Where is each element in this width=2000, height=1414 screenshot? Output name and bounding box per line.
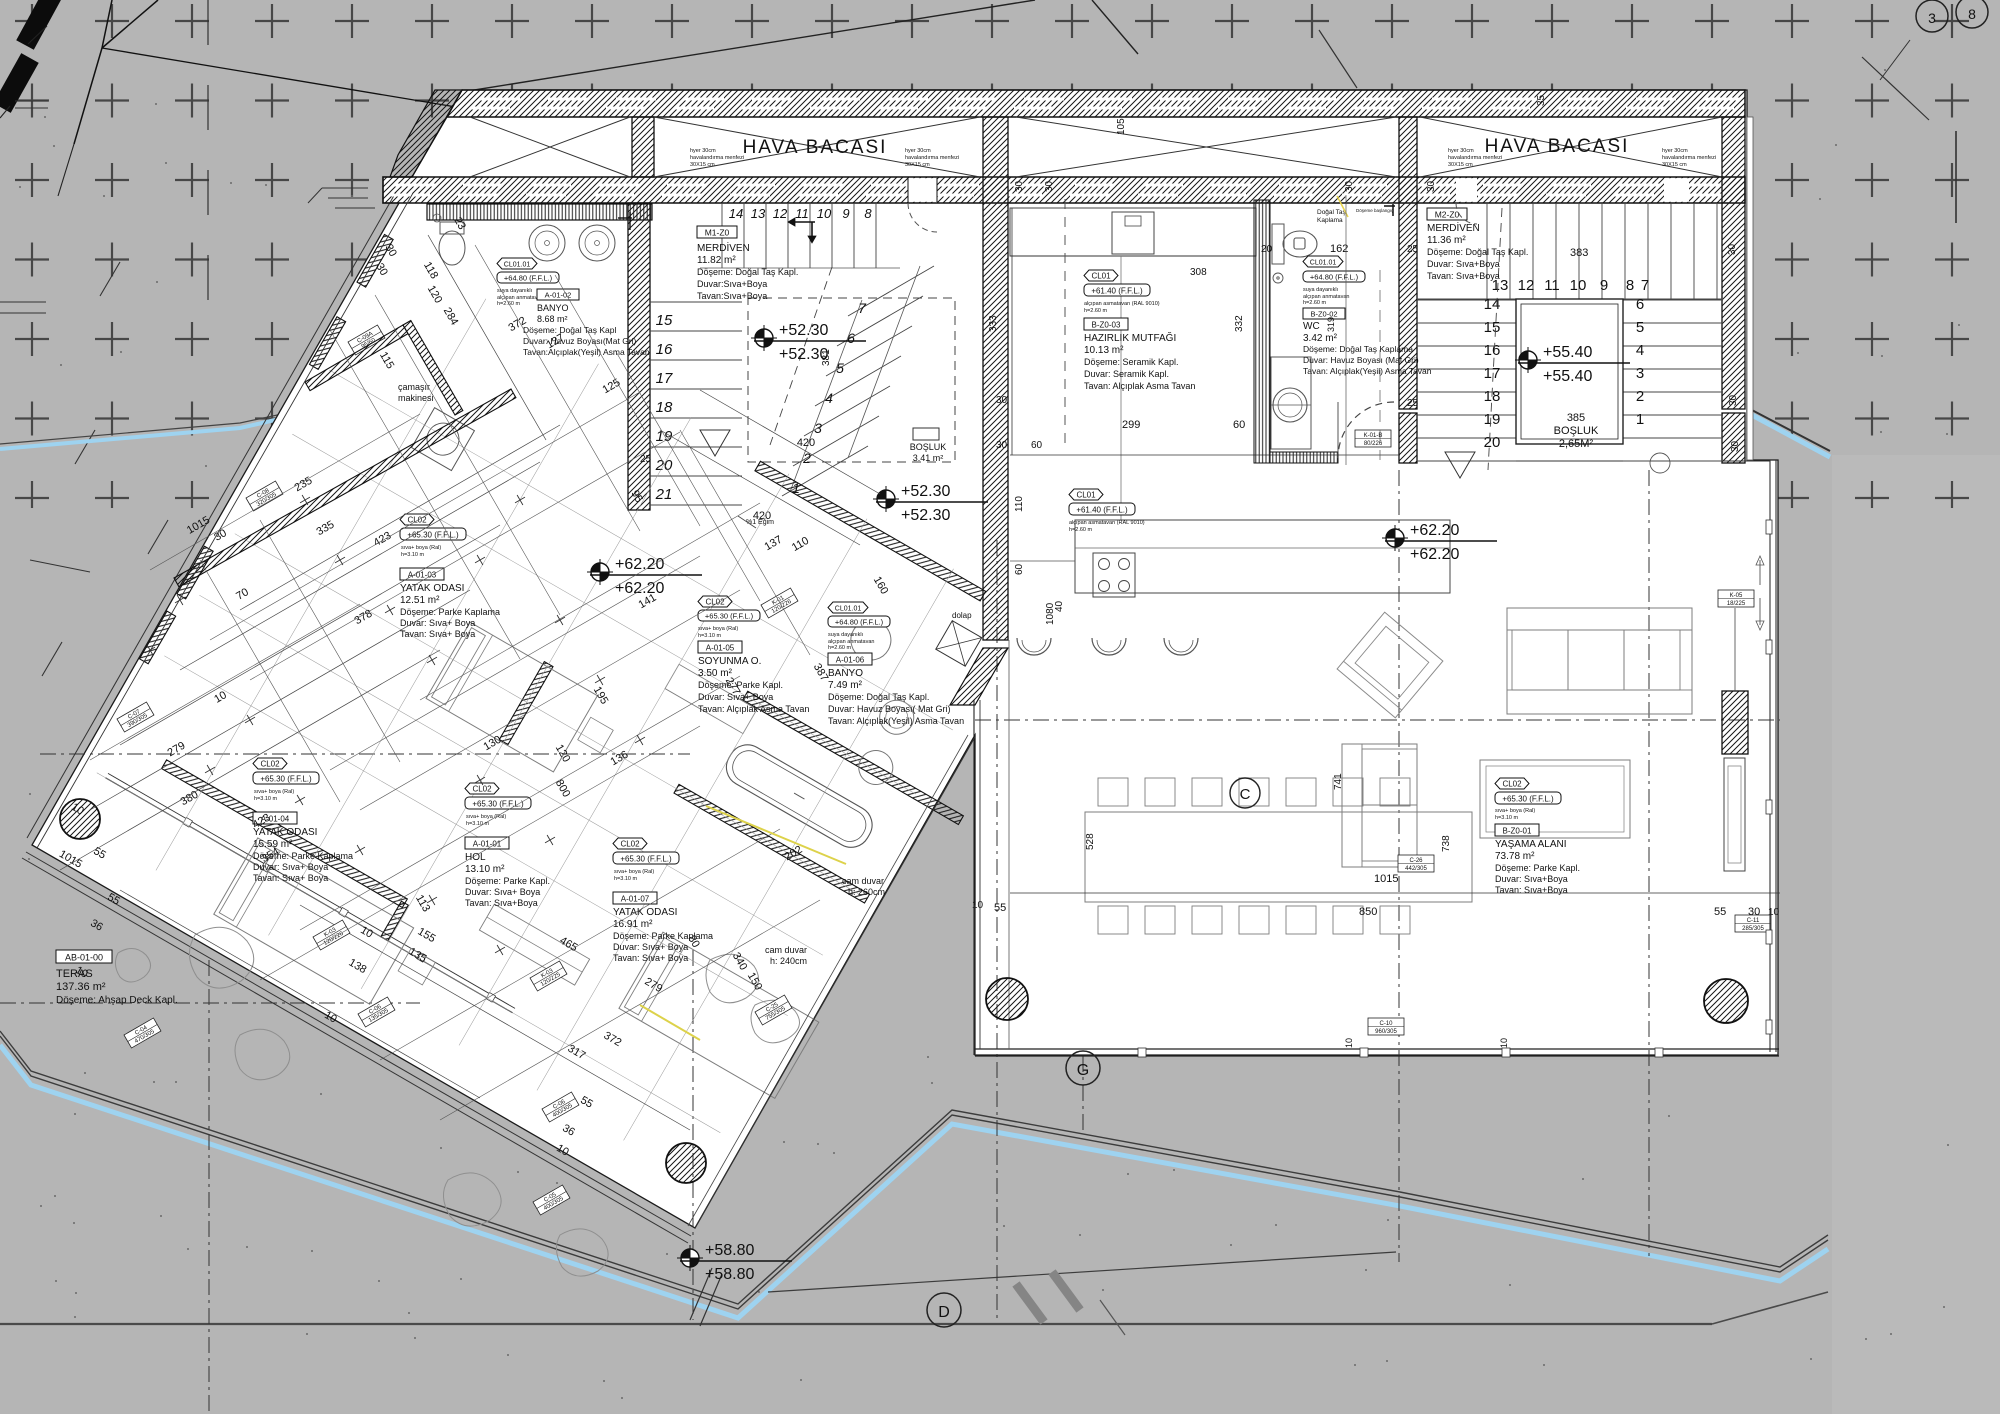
svg-text:Döşeme başlangıç: Döşeme başlangıç — [1356, 208, 1394, 213]
svg-text:Tavan: Sıva+Boya: Tavan: Sıva+Boya — [465, 898, 538, 908]
svg-text:30X15 cm: 30X15 cm — [690, 162, 715, 168]
svg-text:442/305: 442/305 — [1405, 866, 1427, 872]
svg-text:alçıpan asmatavan (RAL 9010): alçıpan asmatavan (RAL 9010) — [1084, 301, 1160, 307]
svg-text:299: 299 — [1122, 419, 1140, 431]
svg-text:h=3.10 m: h=3.10 m — [466, 821, 490, 827]
svg-text:AB-01-00: AB-01-00 — [65, 953, 103, 963]
svg-text:4: 4 — [1636, 342, 1644, 359]
svg-text:+52.30: +52.30 — [779, 322, 828, 339]
svg-text:hyer 30cm: hyer 30cm — [690, 148, 716, 154]
svg-text:h=2.60 m: h=2.60 m — [1069, 527, 1093, 533]
svg-text:105: 105 — [1116, 118, 1127, 135]
svg-text:6: 6 — [1636, 296, 1644, 313]
svg-text:+65.30 (F.F.L.): +65.30 (F.F.L.) — [705, 612, 754, 621]
svg-text:6: 6 — [847, 330, 855, 346]
svg-text:383: 383 — [1570, 247, 1588, 259]
svg-text:19: 19 — [656, 428, 673, 445]
svg-text:h=3.10 m: h=3.10 m — [614, 876, 638, 882]
svg-text:D: D — [938, 1304, 950, 1321]
svg-text:+55.40: +55.40 — [1543, 344, 1592, 361]
svg-text:+52.30: +52.30 — [901, 483, 950, 500]
svg-text:73.78 m²: 73.78 m² — [1495, 851, 1535, 862]
svg-text:CL01.01: CL01.01 — [504, 262, 531, 269]
svg-text:5: 5 — [1636, 319, 1644, 336]
svg-text:528: 528 — [1085, 833, 1096, 850]
svg-text:14: 14 — [729, 206, 743, 221]
svg-text:30: 30 — [1014, 180, 1025, 192]
svg-text:h=3.10 m: h=3.10 m — [254, 796, 278, 802]
svg-text:A-01-02: A-01-02 — [545, 291, 572, 300]
svg-text:Tavan: Sıva+ Boya: Tavan: Sıva+ Boya — [613, 953, 688, 963]
svg-text:1: 1 — [1636, 411, 1644, 428]
svg-text:30X15 cm: 30X15 cm — [1662, 162, 1687, 168]
svg-text:havalandırma menfezi: havalandırma menfezi — [1662, 155, 1716, 161]
svg-text:1015: 1015 — [1374, 873, 1398, 885]
svg-text:332: 332 — [1234, 315, 1245, 332]
svg-text:BOŞLUK: BOŞLUK — [910, 442, 947, 452]
svg-text:Tavan:Alçıplak(Yeşil) Asma Tav: Tavan:Alçıplak(Yeşil) Asma Tavan — [523, 347, 650, 357]
svg-text:30: 30 — [1730, 440, 1741, 452]
svg-text:BOŞLUK: BOŞLUK — [1554, 425, 1599, 437]
svg-text:110: 110 — [1014, 496, 1025, 512]
svg-text:30: 30 — [1344, 180, 1355, 192]
svg-text:CL02: CL02 — [620, 840, 640, 849]
svg-text:YATAK ODASI: YATAK ODASI — [400, 583, 464, 594]
svg-text:55: 55 — [994, 902, 1006, 914]
svg-text:10: 10 — [1344, 1038, 1354, 1048]
svg-text:13: 13 — [751, 206, 766, 221]
svg-text:h: 240cm: h: 240cm — [770, 956, 807, 966]
svg-text:10: 10 — [1570, 277, 1587, 294]
svg-text:12: 12 — [773, 206, 788, 221]
svg-text:+65.30 (F.F.L.): +65.30 (F.F.L.) — [472, 800, 524, 809]
svg-text:A-01-05: A-01-05 — [706, 644, 735, 653]
svg-text:sıva+ boya (Ral): sıva+ boya (Ral) — [1495, 808, 1535, 814]
svg-text:11: 11 — [795, 206, 809, 221]
svg-text:B-Z0-01: B-Z0-01 — [1503, 827, 1532, 836]
svg-text:sıva+ boya (Ral): sıva+ boya (Ral) — [466, 814, 506, 820]
svg-text:4: 4 — [825, 390, 833, 406]
svg-text:MERDİVEN: MERDİVEN — [697, 241, 750, 254]
svg-text:M2-Z0: M2-Z0 — [1435, 210, 1460, 220]
svg-text:8.68 m²: 8.68 m² — [537, 314, 568, 324]
svg-text:CL02: CL02 — [407, 516, 427, 525]
svg-text:Duvar: Sıva+Boya: Duvar: Sıva+Boya — [1495, 874, 1568, 884]
svg-text:K-01-B: K-01-B — [1364, 433, 1383, 439]
svg-text:Tavan: Alçıplak Asma Tavan: Tavan: Alçıplak Asma Tavan — [1084, 381, 1195, 391]
svg-text:Tavan: Alçıplak(Yeşil) Asma Ta: Tavan: Alçıplak(Yeşil) Asma Tavan — [1303, 366, 1432, 376]
svg-text:hyer 30cm: hyer 30cm — [905, 148, 931, 154]
svg-text:h: 260cm: h: 260cm — [848, 887, 885, 897]
svg-text:+55.40: +55.40 — [1543, 368, 1592, 385]
svg-text:HOL: HOL — [465, 852, 486, 863]
svg-text:+52.30: +52.30 — [901, 507, 950, 524]
svg-text:Tavan: Alçıplak Asma Tavan: Tavan: Alçıplak Asma Tavan — [698, 704, 809, 714]
svg-text:alçıpan asmatavan (RAL 9010): alçıpan asmatavan (RAL 9010) — [1069, 520, 1145, 526]
svg-text:CL02: CL02 — [1502, 780, 1522, 789]
svg-text:12.51 m²: 12.51 m² — [400, 595, 440, 606]
svg-text:30: 30 — [996, 395, 1008, 406]
svg-text:h=2.60 m: h=2.60 m — [1303, 300, 1327, 306]
svg-text:CL02: CL02 — [472, 785, 492, 794]
svg-text:20: 20 — [1261, 244, 1273, 255]
svg-text:17: 17 — [1484, 365, 1501, 382]
svg-text:3: 3 — [814, 420, 822, 436]
svg-text:30: 30 — [1426, 180, 1437, 192]
svg-text:+58.80: +58.80 — [705, 1242, 754, 1259]
svg-text:960/305: 960/305 — [1375, 1029, 1397, 1035]
svg-text:15: 15 — [1484, 319, 1501, 336]
svg-text:20: 20 — [655, 457, 673, 474]
svg-text:12: 12 — [1518, 277, 1535, 294]
svg-text:162: 162 — [1330, 243, 1348, 255]
svg-text:h=2.60 m: h=2.60 m — [1084, 308, 1108, 314]
svg-text:cam duvar: cam duvar — [842, 876, 884, 886]
svg-text:Duvar: Havuz Boyası(Mat Gri): Duvar: Havuz Boyası(Mat Gri) — [523, 336, 637, 346]
svg-text:+61.40 (F.F.L.): +61.40 (F.F.L.) — [1091, 287, 1143, 296]
svg-text:Duvar: Havuz Boyası( Mat Gri): Duvar: Havuz Boyası( Mat Gri) — [828, 704, 951, 714]
svg-text:HAZIRLIK MUTFAĞI: HAZIRLIK MUTFAĞI — [1084, 331, 1176, 344]
svg-text:suya dayanıklı: suya dayanıklı — [828, 632, 863, 638]
svg-text:Duvar: Sıva+ Boya: Duvar: Sıva+ Boya — [465, 887, 540, 897]
svg-text:YAŞAMA ALANI: YAŞAMA ALANI — [1495, 839, 1567, 850]
svg-text:+62.20: +62.20 — [1410, 522, 1459, 539]
svg-text:K-05: K-05 — [1730, 593, 1743, 599]
svg-text:385: 385 — [1567, 412, 1585, 424]
svg-text:Döşeme: Parke Kapl.: Döşeme: Parke Kapl. — [465, 876, 550, 886]
svg-text:Tavan: Alçıplak(Yeşil) Asma Ta: Tavan: Alçıplak(Yeşil) Asma Tavan — [828, 716, 964, 726]
svg-text:18/225: 18/225 — [1727, 601, 1746, 607]
svg-text:CL01: CL01 — [1076, 491, 1096, 500]
svg-text:A-01-06: A-01-06 — [836, 656, 865, 665]
svg-text:3.42 m²: 3.42 m² — [1303, 333, 1338, 344]
svg-text:60: 60 — [1031, 440, 1043, 451]
svg-text:30: 30 — [1044, 180, 1055, 192]
svg-text:308: 308 — [1190, 267, 1207, 278]
svg-text:Tavan: Sıva+ Boya: Tavan: Sıva+ Boya — [253, 873, 328, 883]
svg-text:çamaşır: çamaşır — [398, 382, 430, 392]
svg-text:25: 25 — [1407, 398, 1419, 409]
svg-text:BANYO: BANYO — [537, 303, 569, 313]
svg-text:Duvar: Seramik Kapl.: Duvar: Seramik Kapl. — [1084, 369, 1169, 379]
svg-text:suya dayanıklı: suya dayanıklı — [497, 288, 532, 294]
svg-text:dolap: dolap — [952, 611, 972, 620]
svg-text:8: 8 — [864, 206, 872, 221]
svg-text:19: 19 — [1484, 411, 1501, 428]
svg-text:+64.80 (F.F.L.): +64.80 (F.F.L.) — [1310, 273, 1359, 282]
svg-text:h=3.10 m: h=3.10 m — [401, 552, 425, 558]
svg-text:18: 18 — [656, 399, 673, 416]
svg-text:7: 7 — [1641, 277, 1649, 294]
svg-text:Döşeme: Doğal Taş Kaplama: Döşeme: Doğal Taş Kaplama — [1303, 344, 1413, 354]
svg-text:741: 741 — [1333, 773, 1344, 790]
svg-text:h=2.60 m: h=2.60 m — [828, 645, 852, 651]
svg-text:Tavan: Sıva+Boya: Tavan: Sıva+Boya — [1495, 885, 1568, 895]
svg-text:Tavan:Sıva+Boya: Tavan:Sıva+Boya — [697, 291, 767, 301]
svg-text:2: 2 — [802, 450, 811, 466]
svg-text:HAVA BACASI: HAVA BACASI — [743, 137, 888, 158]
svg-text:C-26: C-26 — [1409, 858, 1423, 864]
svg-text:25: 25 — [640, 454, 652, 465]
svg-text:%1 Eğim: %1 Eğim — [746, 519, 774, 526]
svg-text:hyer 30cm: hyer 30cm — [1448, 148, 1474, 154]
svg-text:Duvar: Sıva+ Boya: Duvar: Sıva+ Boya — [400, 618, 475, 628]
svg-text:HAVA BACASI: HAVA BACASI — [1485, 136, 1630, 157]
svg-text:+65.30 (F.F.L.): +65.30 (F.F.L.) — [260, 775, 312, 784]
svg-text:A-01-07: A-01-07 — [621, 895, 650, 904]
svg-text:7.49 m²: 7.49 m² — [828, 680, 863, 691]
svg-text:55: 55 — [1714, 906, 1726, 918]
svg-text:16: 16 — [1484, 342, 1501, 359]
svg-text:BANYO: BANYO — [828, 668, 863, 679]
svg-text:hyer 30cm: hyer 30cm — [1662, 148, 1688, 154]
svg-text:+64.80 (F.F.L.): +64.80 (F.F.L.) — [504, 274, 553, 283]
svg-text:CL02: CL02 — [260, 760, 280, 769]
svg-text:cam duvar: cam duvar — [765, 945, 807, 955]
svg-text:3: 3 — [1928, 10, 1936, 26]
svg-text:+65.30 (F.F.L.): +65.30 (F.F.L.) — [1502, 795, 1554, 804]
svg-text:30X15 cm: 30X15 cm — [905, 162, 930, 168]
svg-text:Döşeme: Parke Kaplama: Döşeme: Parke Kaplama — [400, 607, 500, 617]
svg-text:Döşeme: Doğal Taş Kapl.: Döşeme: Doğal Taş Kapl. — [697, 267, 798, 277]
svg-text:MERDİVEN: MERDİVEN — [1427, 221, 1480, 234]
svg-text:sıva+ boya (Ral): sıva+ boya (Ral) — [698, 626, 738, 632]
svg-text:B-Z0-03: B-Z0-03 — [1092, 321, 1121, 330]
svg-text:+61.40 (F.F.L.): +61.40 (F.F.L.) — [1076, 506, 1128, 515]
svg-text:havalandırma menfezi: havalandırma menfezi — [1448, 155, 1502, 161]
svg-text:30: 30 — [996, 440, 1008, 451]
svg-text:havalandırma menfezi: havalandırma menfezi — [690, 155, 744, 161]
svg-text:Kaplama: Kaplama — [1317, 217, 1343, 224]
svg-text:11.82 m²: 11.82 m² — [697, 255, 736, 266]
svg-text:makinesi: makinesi — [398, 393, 434, 403]
svg-text:Duvar:Sıva+Boya: Duvar:Sıva+Boya — [697, 279, 767, 289]
svg-text:333: 333 — [988, 315, 999, 332]
svg-text:h=3.10 m: h=3.10 m — [698, 633, 722, 639]
svg-text:738: 738 — [1441, 835, 1452, 852]
svg-text:3: 3 — [1636, 365, 1644, 382]
svg-text:YATAK ODASI: YATAK ODASI — [613, 907, 677, 918]
svg-text:Döşeme: Parke Kapl.: Döşeme: Parke Kapl. — [1495, 863, 1580, 873]
svg-text:M1-Z0: M1-Z0 — [705, 228, 730, 238]
svg-text:15: 15 — [656, 312, 673, 329]
svg-text:60: 60 — [1014, 563, 1025, 575]
svg-text:WC: WC — [1303, 321, 1320, 332]
svg-text:sıva+ boya (Ral): sıva+ boya (Ral) — [401, 545, 441, 551]
svg-text:+62.20: +62.20 — [1410, 546, 1459, 563]
svg-text:137.36 m²: 137.36 m² — [56, 981, 106, 993]
svg-text:SOYUNMA O.: SOYUNMA O. — [698, 656, 761, 667]
svg-text:8: 8 — [1626, 277, 1634, 294]
svg-text:2,65M²: 2,65M² — [1559, 438, 1594, 450]
svg-text:11: 11 — [1544, 277, 1560, 294]
svg-text:CL01.01: CL01.01 — [835, 606, 862, 613]
svg-text:suya dayanıklı: suya dayanıklı — [1303, 287, 1338, 293]
svg-text:5: 5 — [836, 360, 844, 376]
svg-text:17: 17 — [656, 370, 673, 387]
svg-text:30X15 cm: 30X15 cm — [1448, 162, 1473, 168]
svg-text:Döşeme: Seramik Kapl.: Döşeme: Seramik Kapl. — [1084, 357, 1179, 367]
svg-text:8: 8 — [1968, 6, 1976, 22]
svg-text:sıva+ boya (Ral): sıva+ boya (Ral) — [254, 789, 294, 795]
svg-text:Tavan: Sıva+Boya: Tavan: Sıva+Boya — [1427, 271, 1500, 281]
svg-text:10: 10 — [817, 206, 832, 221]
svg-text:h=3.10 m: h=3.10 m — [1495, 815, 1519, 821]
svg-text:30: 30 — [1727, 243, 1738, 255]
svg-text:16.91 m²: 16.91 m² — [613, 919, 653, 930]
svg-text:Döşeme: Doğal Taş Kapl.: Döşeme: Doğal Taş Kapl. — [1427, 247, 1528, 257]
svg-text:60: 60 — [1233, 419, 1245, 431]
svg-text:13.10 m²: 13.10 m² — [465, 864, 505, 875]
svg-text:21: 21 — [655, 486, 673, 503]
svg-text:285/305: 285/305 — [1742, 926, 1764, 932]
svg-text:2: 2 — [1636, 388, 1644, 405]
svg-text:25: 25 — [1407, 244, 1419, 255]
svg-text:G: G — [1077, 1062, 1089, 1079]
svg-text:319: 319 — [1326, 317, 1336, 332]
svg-text:Doğal Taş: Doğal Taş — [1317, 209, 1347, 216]
svg-text:14: 14 — [1484, 296, 1501, 313]
svg-text:YATAK ODASI: YATAK ODASI — [253, 827, 317, 838]
svg-text:16: 16 — [656, 341, 673, 358]
svg-text:+65.30 (F.F.L.): +65.30 (F.F.L.) — [407, 531, 459, 540]
svg-text:+65.30 (F.F.L.): +65.30 (F.F.L.) — [620, 855, 672, 864]
svg-text:7: 7 — [858, 300, 867, 316]
svg-text:9: 9 — [842, 206, 849, 221]
svg-text:CL01.01: CL01.01 — [1310, 260, 1337, 267]
svg-text:Tavan: Sıva+ Boya: Tavan: Sıva+ Boya — [400, 629, 475, 639]
svg-text:Duvar: Sıva+Boya: Duvar: Sıva+Boya — [1427, 259, 1500, 269]
svg-text:Duvar: Sıva+ Boya: Duvar: Sıva+ Boya — [613, 942, 688, 952]
svg-text:+52.30: +52.30 — [779, 346, 828, 363]
svg-text:9: 9 — [1600, 277, 1608, 294]
svg-text:40: 40 — [1054, 600, 1065, 612]
svg-text:30: 30 — [1728, 394, 1739, 406]
svg-text:850: 850 — [1359, 906, 1377, 918]
svg-text:11.36 m²: 11.36 m² — [1427, 235, 1466, 246]
svg-text:C-10: C-10 — [1379, 1021, 1393, 1027]
svg-text:+62.20: +62.20 — [615, 556, 664, 573]
svg-text:C-11: C-11 — [1747, 918, 1760, 924]
svg-text:havalandırma menfezi: havalandırma menfezi — [905, 155, 959, 161]
svg-text:sıva+ boya (Ral): sıva+ boya (Ral) — [614, 869, 654, 875]
svg-text:A-01-01: A-01-01 — [473, 840, 502, 849]
svg-text:Döşeme: Doğal Taş Kapl.: Döşeme: Doğal Taş Kapl. — [828, 692, 929, 702]
svg-text:35: 35 — [1536, 94, 1547, 106]
svg-text:3.41 m²: 3.41 m² — [913, 453, 944, 463]
svg-text:CL02: CL02 — [705, 598, 725, 607]
svg-text:Duvar: Havuz Boyası (Mat Gri): Duvar: Havuz Boyası (Mat Gri) — [1303, 355, 1419, 365]
svg-text:Döşeme: Doğal Taş Kapl: Döşeme: Doğal Taş Kapl — [523, 325, 617, 335]
svg-text:C: C — [1240, 786, 1251, 803]
svg-text:10: 10 — [1499, 1038, 1509, 1048]
svg-text:+58.80: +58.80 — [705, 1266, 754, 1283]
svg-text:10.13 m²: 10.13 m² — [1084, 345, 1124, 356]
svg-text:+64.80 (F.F.L.): +64.80 (F.F.L.) — [835, 618, 884, 627]
svg-text:Döşeme: Ahşap Deck Kapl.: Döşeme: Ahşap Deck Kapl. — [56, 995, 178, 1006]
svg-text:3.50 m²: 3.50 m² — [698, 668, 733, 679]
svg-text:20: 20 — [1484, 434, 1501, 451]
svg-text:CL01: CL01 — [1091, 272, 1111, 281]
